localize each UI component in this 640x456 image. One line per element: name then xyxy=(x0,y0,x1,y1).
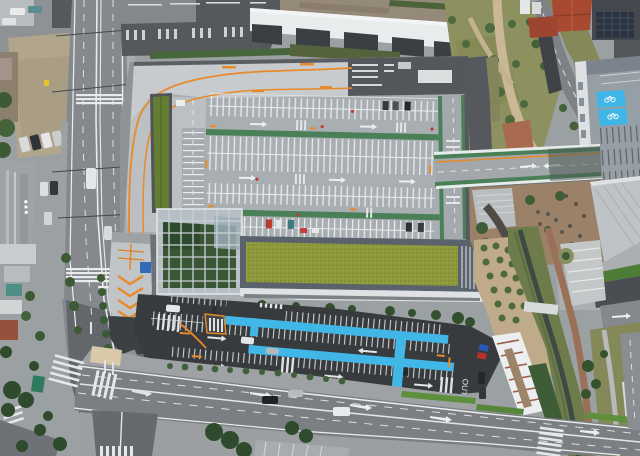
svg-text:■ ■ ■: ■ ■ ■ xyxy=(22,200,29,215)
